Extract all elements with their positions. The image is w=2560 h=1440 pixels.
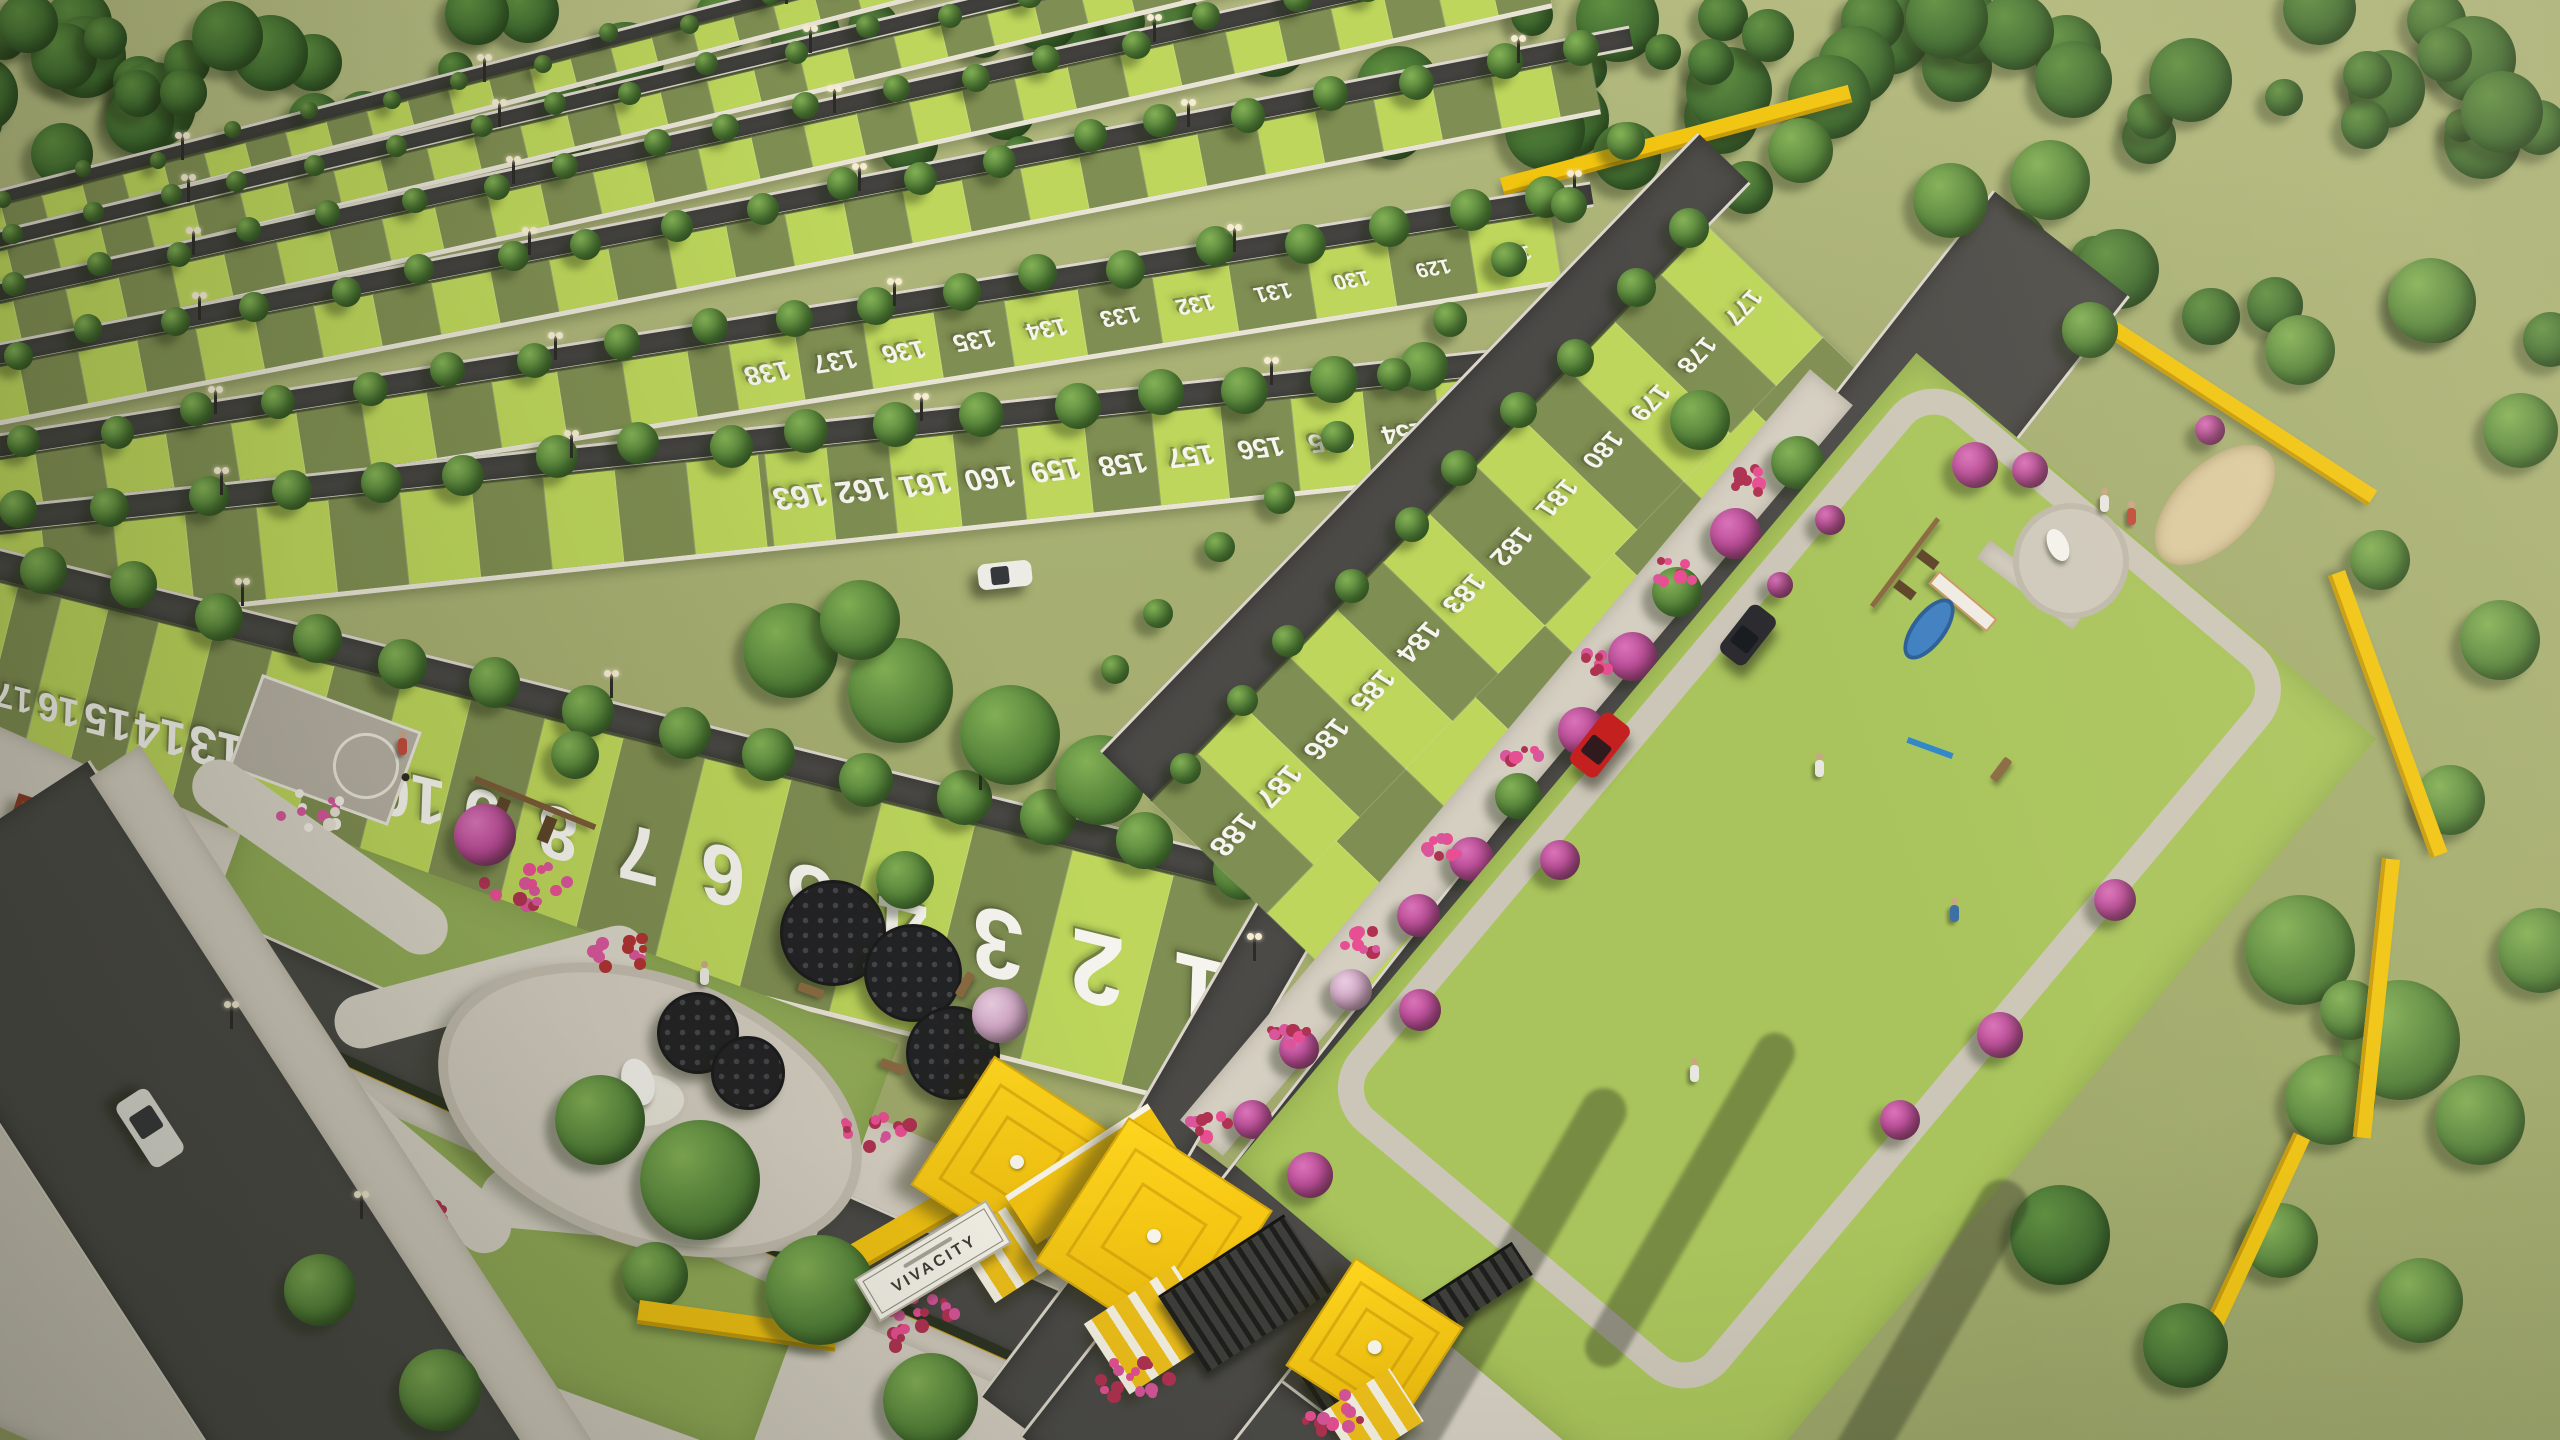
plot-number: 7 xyxy=(616,808,661,898)
flower-bed xyxy=(622,942,634,954)
flower-bed xyxy=(1340,941,1349,950)
tree-icon xyxy=(90,488,129,527)
tree-icon xyxy=(776,300,813,337)
street-lamp xyxy=(893,282,896,306)
plot-cell xyxy=(1034,0,1088,34)
flower-bed xyxy=(1196,1114,1208,1126)
plot-number: 180 xyxy=(1577,427,1630,472)
plot-cell: 160 xyxy=(953,428,1028,526)
flower-bed xyxy=(295,789,304,798)
tree-icon xyxy=(1106,250,1145,289)
tree-icon xyxy=(839,753,893,807)
tree-icon xyxy=(599,23,618,42)
plot-cell xyxy=(571,49,618,83)
flower-bed xyxy=(871,1115,880,1124)
flower-bed xyxy=(634,958,646,970)
lamp-light-icon xyxy=(548,332,555,339)
plot-cell xyxy=(557,362,633,438)
street-lamp xyxy=(483,58,486,82)
plot-cell xyxy=(608,238,677,300)
flower-bed xyxy=(1367,926,1377,936)
flower-bed xyxy=(1344,1406,1355,1417)
plot-cell xyxy=(1256,112,1325,174)
plot-cell xyxy=(910,91,972,144)
street-lamp xyxy=(220,471,223,495)
tree-icon xyxy=(555,1075,645,1165)
tree-icon xyxy=(1551,187,1588,224)
street-lamp xyxy=(1517,39,1520,63)
plot-cell xyxy=(661,82,715,124)
tree-icon xyxy=(1285,224,1325,264)
plot-cell xyxy=(330,219,392,272)
plot-cell xyxy=(427,382,503,458)
flower-bed xyxy=(1687,575,1697,585)
tree-icon xyxy=(1143,599,1173,629)
tree-icon xyxy=(962,64,990,92)
plot-cell xyxy=(1433,77,1502,139)
lamp-light-icon xyxy=(183,132,190,139)
flower-bed xyxy=(561,876,573,888)
flower-bed xyxy=(1352,939,1364,951)
tree-icon xyxy=(160,69,207,116)
tree-icon xyxy=(1617,268,1656,307)
flower-bed xyxy=(335,796,344,805)
tree-icon xyxy=(1450,189,1491,230)
tree-icon xyxy=(2388,258,2473,343)
plot-cell xyxy=(622,351,698,427)
tree-icon xyxy=(2,272,26,296)
tree-icon xyxy=(101,416,134,449)
tree-icon xyxy=(640,1120,760,1240)
person xyxy=(700,968,709,985)
statue-plaza xyxy=(2013,503,2129,619)
lamp-light-icon xyxy=(852,163,859,170)
tree-icon xyxy=(1138,369,1184,415)
tree-icon xyxy=(239,292,268,321)
tree-icon xyxy=(2378,1258,2463,1343)
tree-icon xyxy=(1742,9,1795,62)
person xyxy=(1815,760,1824,777)
tree-icon xyxy=(2435,1075,2525,1165)
bougainvillea-tree-icon xyxy=(1767,572,1793,598)
person xyxy=(1690,1065,1699,1082)
tree-icon xyxy=(150,152,167,169)
plot-cell xyxy=(400,485,481,584)
flower-bed xyxy=(304,823,313,832)
tree-icon xyxy=(4,342,32,370)
tree-icon xyxy=(0,191,11,207)
tree-icon xyxy=(115,70,162,117)
flower-bed xyxy=(1111,1381,1124,1394)
plot-cell xyxy=(1173,32,1235,85)
tree-icon xyxy=(960,685,1060,785)
tree-icon xyxy=(353,372,387,406)
tree-icon xyxy=(1018,254,1057,293)
plot-number: 183 xyxy=(1437,570,1493,618)
plot-cell: 131 xyxy=(1229,253,1317,331)
plot-cell xyxy=(435,196,497,249)
street-lamp xyxy=(528,231,531,255)
tree-icon xyxy=(904,162,937,195)
street-lamp xyxy=(785,0,788,4)
tree-icon xyxy=(1264,482,1296,514)
lamp-light-icon xyxy=(1235,224,1242,231)
tree-icon xyxy=(195,593,243,641)
plot-cell xyxy=(1080,146,1149,208)
tree-icon xyxy=(1433,302,1468,337)
bougainvillea-tree-icon xyxy=(1287,1152,1333,1198)
lamp-light-icon xyxy=(1189,99,1196,106)
car-windshield xyxy=(128,1104,164,1140)
flower-bed xyxy=(1664,558,1671,565)
tree-icon xyxy=(83,202,103,222)
plot-cell xyxy=(382,208,444,261)
tree-icon xyxy=(792,92,819,119)
flower-bed xyxy=(323,818,335,830)
tree-icon xyxy=(570,229,601,260)
plot-cell: 161 xyxy=(889,435,962,533)
street-lamp xyxy=(214,390,217,414)
tree-icon xyxy=(820,580,900,660)
tree-icon xyxy=(785,41,808,64)
flower-bed xyxy=(297,807,306,816)
plot-cell: 133 xyxy=(1078,278,1163,355)
lamp-light-icon xyxy=(354,1191,361,1198)
plot-number: 177 xyxy=(1717,285,1767,328)
plot-cell xyxy=(611,38,658,72)
tree-icon xyxy=(712,114,739,141)
tree-icon xyxy=(2498,908,2560,993)
lamp-light-icon xyxy=(232,1001,239,1008)
plot-cell xyxy=(646,149,708,202)
tree-icon xyxy=(972,987,1028,1043)
lamp-light-icon xyxy=(506,156,513,163)
tree-icon xyxy=(1563,30,1599,66)
plot-number: 162 xyxy=(831,473,893,509)
tree-icon xyxy=(1500,392,1537,429)
plot-number: 130 xyxy=(1330,267,1373,293)
tree-icon xyxy=(1670,390,1730,450)
lamp-light-icon xyxy=(604,670,611,677)
plot-cell xyxy=(593,161,655,214)
plot-cell xyxy=(408,91,455,125)
tree-icon xyxy=(2283,0,2356,45)
tree-icon xyxy=(304,155,325,176)
plot-cell: 135 xyxy=(933,301,1015,377)
plot-cell xyxy=(785,203,854,265)
plot-number: 136 xyxy=(878,335,930,366)
lamp-light-icon xyxy=(522,227,529,234)
lamp-light-icon xyxy=(189,174,196,181)
street-lamp xyxy=(1270,361,1273,385)
lamp-light-icon xyxy=(208,386,215,393)
flower-bed xyxy=(1216,1111,1226,1121)
plot-cell xyxy=(373,283,442,345)
tree-icon xyxy=(0,56,18,132)
lamp-light-icon xyxy=(214,467,221,474)
tree-icon xyxy=(742,728,795,781)
flower-bed xyxy=(1593,664,1603,674)
plot-number: 16 xyxy=(37,684,80,734)
plot-number: 6 xyxy=(699,826,746,921)
lamp-light-icon xyxy=(1567,170,1574,177)
lamp-light-icon xyxy=(895,278,902,285)
street-lamp xyxy=(187,178,190,202)
lamp-light-icon xyxy=(564,430,571,437)
plot-cell: 159 xyxy=(1018,421,1094,519)
lamp-light-icon xyxy=(827,85,834,92)
flower-bed xyxy=(1674,570,1687,583)
plot-cell xyxy=(855,0,902,9)
tree-icon xyxy=(1395,507,1430,542)
plot-cell: 138 xyxy=(729,334,806,410)
white-sedan xyxy=(977,559,1033,591)
plot-cell: 162 xyxy=(826,441,898,539)
tree-icon xyxy=(1143,104,1177,138)
person-head xyxy=(1691,1058,1698,1065)
flower-bed xyxy=(594,943,604,953)
tree-icon xyxy=(857,287,895,325)
flower-bed xyxy=(1434,851,1444,861)
flower-bed xyxy=(1302,1027,1310,1035)
tree-icon xyxy=(1055,383,1101,429)
plot-cell: 134 xyxy=(1005,290,1088,367)
plot-cell xyxy=(1068,56,1130,109)
tree-icon xyxy=(1122,31,1150,59)
tree-icon xyxy=(7,425,39,457)
tree-icon xyxy=(445,0,508,45)
tree-icon xyxy=(450,72,468,90)
plot-cell xyxy=(894,26,948,68)
tree-icon xyxy=(883,1353,978,1440)
plot-cell xyxy=(521,115,575,157)
car-windshield xyxy=(1730,625,1760,654)
tree-icon xyxy=(2460,600,2540,680)
plot-cell: 137 xyxy=(795,324,873,400)
tree-icon xyxy=(876,851,934,909)
plot-cell xyxy=(804,114,866,167)
tree-icon xyxy=(224,121,241,138)
tree-icon xyxy=(87,252,111,276)
person-head xyxy=(701,961,708,968)
lamp-light-icon xyxy=(192,292,199,299)
canopy-umbrella xyxy=(711,1036,785,1110)
flower-bed xyxy=(1269,1029,1280,1040)
plot-cell xyxy=(962,169,1031,231)
tree-icon xyxy=(399,1349,481,1431)
plot-number: 156 xyxy=(1234,433,1288,464)
plot-cell xyxy=(491,260,560,322)
tree-icon xyxy=(167,242,192,267)
flower-bed xyxy=(639,945,646,952)
tree-icon xyxy=(644,129,671,156)
tree-icon xyxy=(1101,655,1130,684)
tree-icon xyxy=(2523,312,2560,367)
plot-number: 159 xyxy=(1027,453,1085,487)
lamp-light-icon xyxy=(922,393,929,400)
plot-cell xyxy=(857,103,919,156)
plot-cell xyxy=(78,341,147,403)
lamp-light-icon xyxy=(1181,99,1188,106)
tree-icon xyxy=(873,402,918,447)
tree-icon xyxy=(661,210,692,241)
tree-icon xyxy=(2461,71,2543,153)
lamp-light-icon xyxy=(492,99,499,106)
plot-cell xyxy=(381,149,435,191)
tree-icon xyxy=(386,135,408,157)
plot-cell xyxy=(328,493,409,592)
tree-icon xyxy=(1335,569,1369,603)
tree-icon xyxy=(2341,100,2390,149)
plot-cell xyxy=(196,318,265,380)
tree-icon xyxy=(856,15,880,39)
street-lamp xyxy=(181,136,184,160)
plot-cell xyxy=(432,272,501,334)
bougainvillea-tree-icon xyxy=(1815,505,1845,535)
plot-cell xyxy=(427,138,481,180)
tree-icon xyxy=(300,102,317,119)
plot-number: 185 xyxy=(1343,665,1401,715)
plot-cell: 163 xyxy=(765,448,836,546)
tree-icon xyxy=(378,639,428,689)
plot-number: 163 xyxy=(769,479,832,516)
tree-icon xyxy=(236,217,261,242)
tree-icon xyxy=(315,200,340,225)
plot-number: 134 xyxy=(1022,313,1071,342)
tree-icon xyxy=(1369,206,1410,247)
plot-number: 158 xyxy=(1094,447,1151,480)
tree-icon xyxy=(404,254,434,284)
tree-icon xyxy=(562,685,614,737)
tree-icon xyxy=(1377,358,1411,392)
plot-cell xyxy=(1226,21,1288,74)
tree-icon xyxy=(2343,51,2392,100)
bougainvillea-tree-icon xyxy=(1880,1100,1920,1140)
street-lamp xyxy=(1187,103,1190,127)
tree-icon xyxy=(442,455,483,496)
street-lamp xyxy=(198,296,201,320)
plot-cell: 132 xyxy=(1152,266,1239,343)
person xyxy=(2100,495,2109,512)
lamp-light-icon xyxy=(222,467,229,474)
plot-number: 135 xyxy=(949,324,999,354)
flower-bed xyxy=(1658,576,1669,587)
tree-icon xyxy=(1116,812,1173,869)
tree-icon xyxy=(161,184,182,205)
plot-number: 137 xyxy=(808,346,861,378)
tree-icon xyxy=(261,385,295,419)
plot-number: 131 xyxy=(1251,279,1296,306)
lamp-light-icon xyxy=(1264,357,1271,364)
street-lamp xyxy=(809,29,812,53)
lamp-light-icon xyxy=(1272,357,1279,364)
plot-number: 161 xyxy=(895,466,956,501)
plot-number: 2 xyxy=(1069,910,1126,1025)
plot-cell: 158 xyxy=(1084,414,1161,513)
tree-icon xyxy=(517,343,552,378)
tree-icon xyxy=(1032,45,1060,73)
plot-cell xyxy=(185,508,266,607)
plot-cell xyxy=(1174,0,1228,1)
bougainvillea-tree-icon xyxy=(1399,989,1441,1031)
lamp-light-icon xyxy=(1147,14,1154,21)
plot-cell xyxy=(801,48,855,90)
tree-icon xyxy=(1645,34,1681,70)
plot-cell xyxy=(1331,0,1393,50)
tree-icon xyxy=(192,1,263,72)
plot-cell xyxy=(472,478,553,577)
plot-cell xyxy=(277,231,339,284)
tree-icon xyxy=(2265,315,2335,385)
person-head xyxy=(1816,753,1823,760)
tree-icon xyxy=(2143,1303,2228,1388)
flower-bed xyxy=(1533,750,1544,761)
tree-icon xyxy=(747,193,779,225)
plot-cell xyxy=(1384,0,1446,38)
tree-icon xyxy=(622,1242,688,1308)
flower-bed xyxy=(1113,1365,1124,1376)
bougainvillea-tree-icon xyxy=(2195,415,2225,445)
plot-cell xyxy=(137,329,206,391)
lamp-light-icon xyxy=(887,278,894,285)
plot-cell: 156 xyxy=(1221,399,1301,498)
tree-icon xyxy=(1399,65,1434,100)
tree-icon xyxy=(1491,242,1527,278)
flower-bed xyxy=(863,1140,876,1153)
bougainvillea-tree-icon xyxy=(1952,442,1998,488)
lamp-light-icon xyxy=(1575,170,1582,177)
tree-icon xyxy=(618,82,641,105)
street-lamp xyxy=(192,231,195,255)
tree-icon xyxy=(1196,226,1236,266)
street-lamp xyxy=(1253,937,1256,961)
car-windshield xyxy=(1581,734,1613,765)
flower-bed xyxy=(550,885,561,896)
bougainvillea-tree-icon xyxy=(1977,1012,2023,1058)
tree-icon xyxy=(2149,38,2232,121)
tree-icon xyxy=(784,409,828,453)
street-lamp xyxy=(554,336,557,360)
person-head xyxy=(2128,501,2135,508)
flower-bed xyxy=(889,1339,903,1353)
plot-cell xyxy=(686,455,767,554)
lamp-light-icon xyxy=(235,578,242,585)
plot-number: 160 xyxy=(960,460,1019,494)
plot-cell xyxy=(848,37,902,79)
tree-icon xyxy=(284,1254,356,1326)
tree-icon xyxy=(110,561,157,608)
tree-icon xyxy=(1221,367,1268,414)
tree-icon xyxy=(1557,339,1595,377)
plot-number: 186 xyxy=(1296,713,1355,764)
tree-icon xyxy=(1310,356,1358,404)
flower-bed xyxy=(330,807,340,817)
plot-cell xyxy=(733,7,780,41)
plot-number: 179 xyxy=(1624,380,1676,424)
plot-cell xyxy=(1139,135,1208,197)
tree-icon xyxy=(1698,0,1748,41)
plot-number: 187 xyxy=(1249,760,1309,811)
person xyxy=(2127,508,2136,525)
tree-icon xyxy=(1313,76,1348,111)
plot-cell xyxy=(693,17,740,51)
flower-bed xyxy=(1131,1367,1140,1376)
plot-cell xyxy=(1197,123,1266,185)
tree-icon xyxy=(604,324,640,360)
person-head xyxy=(1951,898,1958,905)
street-lamp xyxy=(498,103,501,127)
tree-icon xyxy=(469,657,520,708)
